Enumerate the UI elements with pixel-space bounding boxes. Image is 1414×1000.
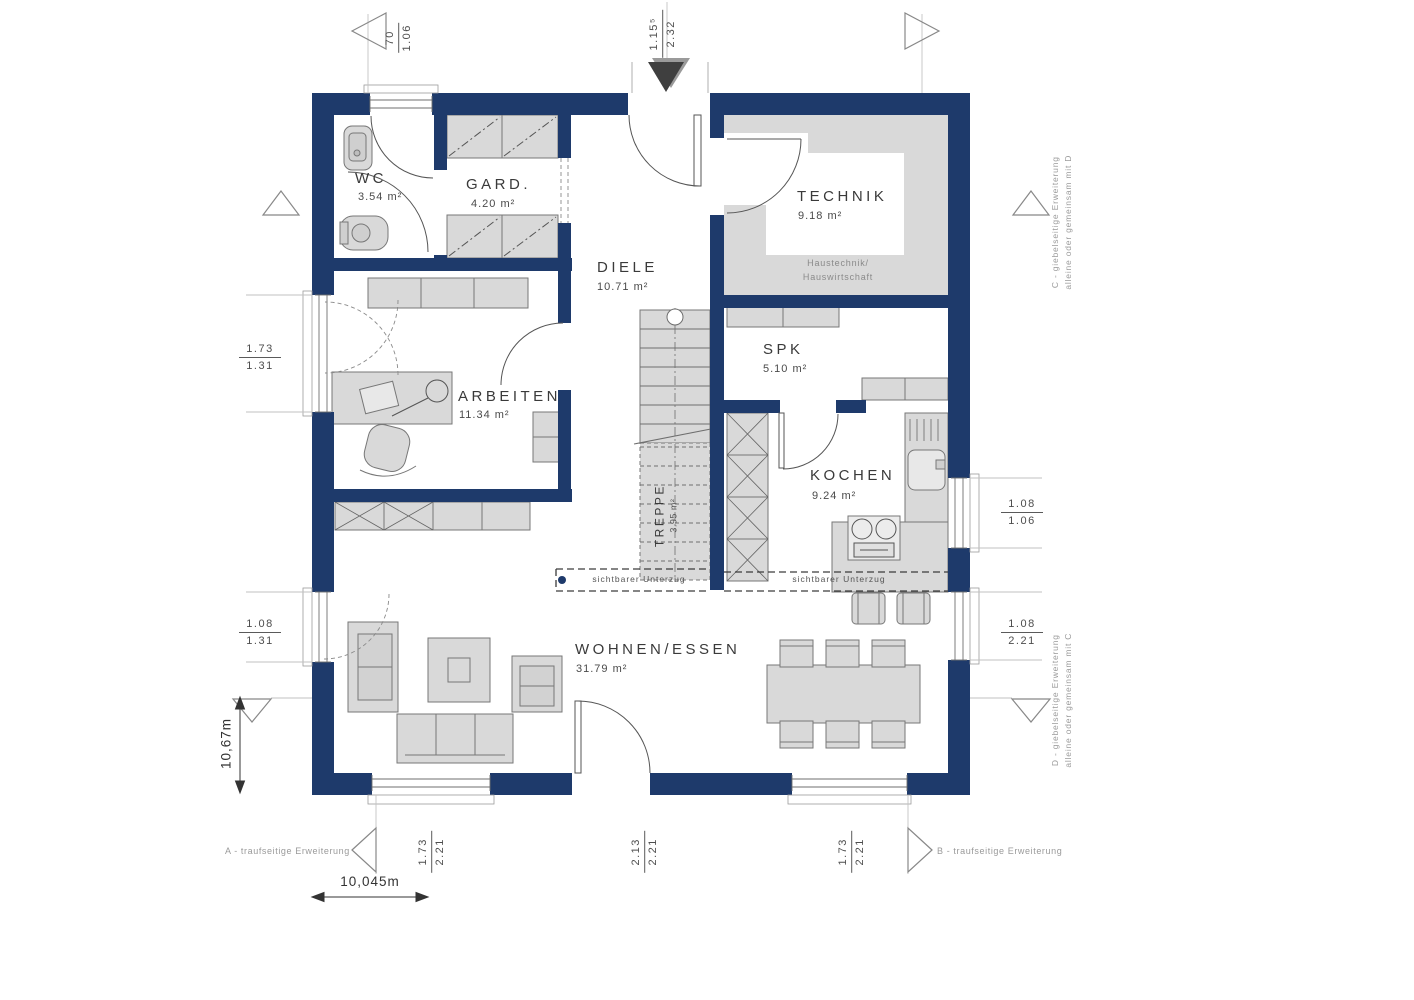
sofa-icon	[397, 714, 513, 763]
room-label-wohnen-essen: WOHNEN/ESSEN	[575, 641, 740, 658]
dim-bottom-right: 1.73 2.21	[836, 812, 868, 892]
beam-dot	[558, 576, 566, 584]
room-area-wc: 3.54 m²	[358, 191, 402, 203]
desk-icon	[332, 372, 452, 424]
office-chair-icon	[360, 422, 416, 477]
technik-note: Haustechnik/ Hauswirtschaft	[768, 256, 908, 285]
technik-note-line2: Hauswirtschaft	[768, 270, 908, 284]
room-label-wc: WC	[355, 170, 387, 187]
kitchen-counter-icon	[832, 413, 948, 592]
coffee-table-icon	[428, 638, 490, 702]
room-area-kochen: 9.24 m²	[812, 490, 856, 502]
office-shelf-icon	[368, 278, 528, 308]
annotation-b: B - traufseitige Erweiterung	[937, 846, 1062, 856]
technik-note-line1: Haustechnik/	[768, 256, 908, 270]
armchair-left-icon	[348, 622, 398, 712]
stove-icon	[848, 516, 900, 560]
beam-label-left: sichtbarer Unterzug	[578, 574, 700, 584]
room-label-spk: SPK	[763, 341, 804, 358]
wardrobe-bottom-icon	[447, 215, 558, 258]
armchair-right-icon	[512, 656, 562, 712]
room-area-diele: 10.71 m²	[597, 281, 648, 293]
annotation-c: C - giebelseitige Erweiterung alleine od…	[1049, 137, 1075, 307]
room-label-kochen: KOCHEN	[810, 467, 895, 484]
total-width-label: 10,045m	[315, 874, 425, 889]
room-area-arbeiten: 11.34 m²	[459, 409, 510, 421]
total-width-arrow	[312, 893, 428, 902]
dim-right-upper: 1.08 1.06	[990, 497, 1054, 529]
wc-toilet-icon	[340, 216, 388, 250]
wc-sink-icon	[344, 126, 372, 170]
dim-top-left: 70 1.06	[383, 0, 415, 78]
sideboard-icon	[335, 502, 530, 530]
bar-stools-icon	[852, 593, 930, 624]
room-label-arbeiten: ARBEITEN	[458, 388, 561, 405]
dim-right-lower: 1.08 2.21	[990, 617, 1054, 649]
room-area-wohnen-essen: 31.79 m²	[576, 663, 627, 675]
dim-left-upper: 1.73 1.31	[228, 342, 292, 374]
room-area-spk: 5.10 m²	[763, 363, 807, 375]
floor-plan-canvas	[0, 0, 1414, 1000]
room-area-technik: 9.18 m²	[798, 210, 842, 222]
total-height-label: 10,67m	[219, 699, 234, 789]
beam-label-right: sichtbarer Unterzug	[778, 574, 900, 584]
floor-plan-page: WC 3.54 m² GARD. 4.20 m² DIELE 10.71 m² …	[0, 0, 1414, 1000]
dim-left-lower: 1.08 1.31	[228, 617, 292, 649]
annotation-d: D - giebelseitige Erweiterung alleine od…	[1049, 615, 1075, 785]
room-area-gard: 4.20 m²	[471, 198, 515, 210]
kitchen-tall-cabinet-icon	[727, 413, 768, 581]
room-label-technik: TECHNIK	[797, 188, 887, 205]
annotation-a: A - traufseitige Erweiterung	[225, 846, 350, 856]
room-label-diele: DIELE	[597, 259, 658, 276]
wardrobe-top-icon	[447, 115, 558, 158]
dim-bottom-center: 2.13 2.21	[629, 812, 661, 892]
dim-top-center: 1.15⁵ 2.32	[647, 0, 679, 74]
room-label-treppe: TREPPE 3.95 m²	[652, 456, 679, 576]
spk-cabinets-icon	[727, 305, 948, 400]
dining-table-icon	[767, 665, 920, 723]
room-label-gard: GARD.	[466, 176, 531, 193]
